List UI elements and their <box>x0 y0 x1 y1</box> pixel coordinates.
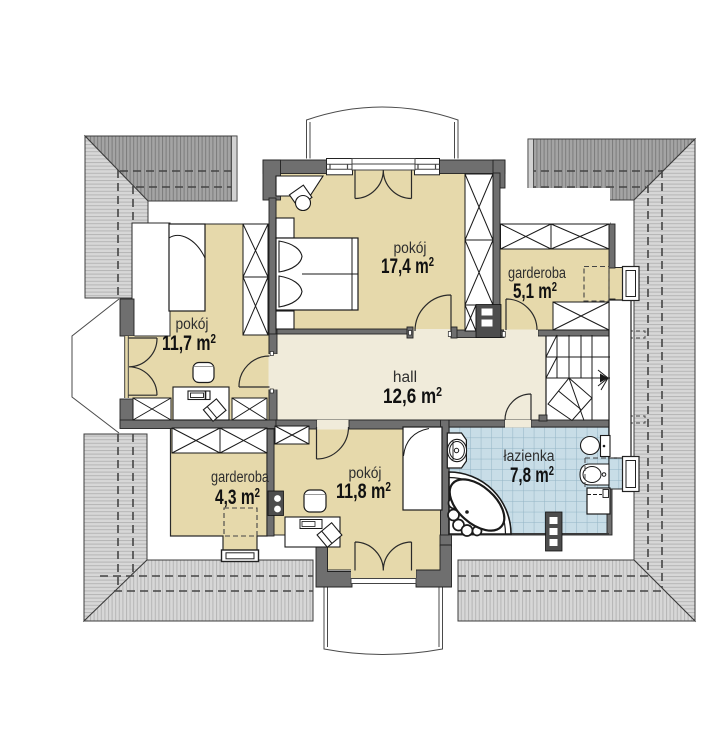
svg-text:garderoba: garderoba <box>211 469 269 486</box>
svg-text:17,4 m2: 17,4 m2 <box>381 254 434 278</box>
svg-text:5,1 m2: 5,1 m2 <box>513 279 557 303</box>
svg-text:łazienka: łazienka <box>504 448 555 465</box>
svg-text:pokój: pokój <box>176 316 209 333</box>
svg-text:12,6 m2: 12,6 m2 <box>383 384 442 408</box>
svg-text:hall: hall <box>393 369 417 386</box>
svg-text:11,8 m2: 11,8 m2 <box>336 479 391 503</box>
svg-text:7,8 m2: 7,8 m2 <box>510 463 554 487</box>
svg-text:4,3 m2: 4,3 m2 <box>215 485 260 509</box>
svg-text:11,7 m2: 11,7 m2 <box>162 331 216 355</box>
